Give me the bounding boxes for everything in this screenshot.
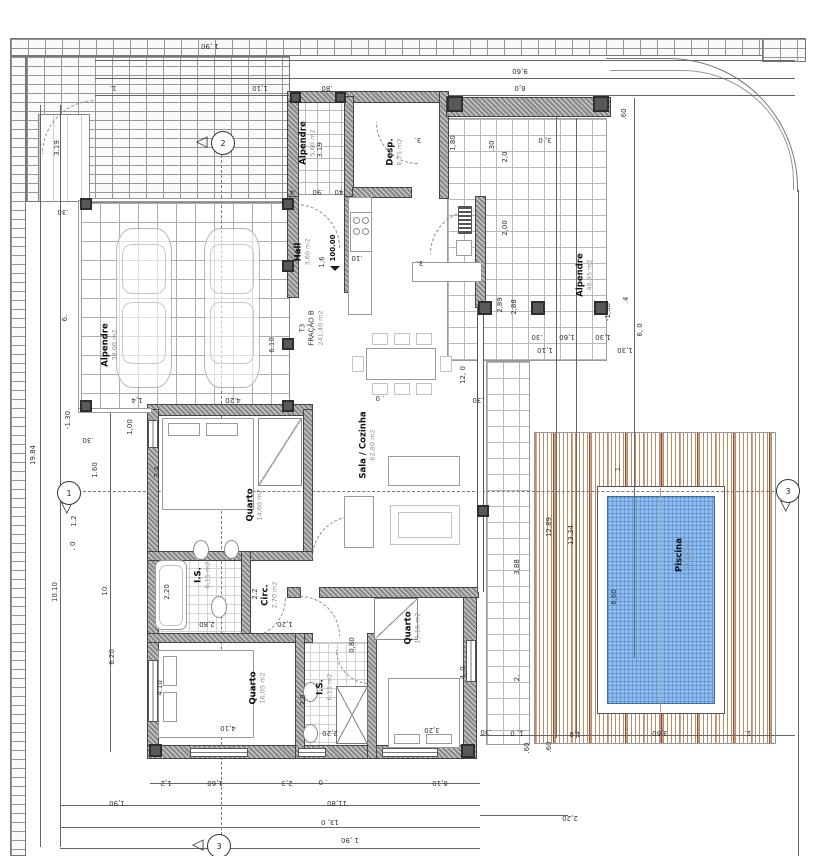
window xyxy=(298,748,326,757)
dimension-label: 10.10 xyxy=(51,582,59,602)
dimension-label: 4,10 xyxy=(220,724,236,732)
dimension-label: . 0 xyxy=(69,542,77,551)
toilet xyxy=(303,724,318,743)
room-label: Hall3,60 m2 xyxy=(294,238,311,265)
room-area: 23,60 m2 xyxy=(685,538,692,572)
room-label: Piscina23,60 m2 xyxy=(675,538,692,572)
chair xyxy=(352,356,364,372)
dimension-label: 2,20 xyxy=(562,814,578,822)
chair xyxy=(440,356,452,372)
pillow xyxy=(206,423,238,436)
pillow xyxy=(163,656,177,686)
dimension-label: 1,30 xyxy=(617,346,633,354)
appliance xyxy=(456,240,472,256)
dimension-label: 2,20 xyxy=(322,729,338,737)
dimension-label: . 0 xyxy=(319,778,328,786)
dimension-label: 3.19 xyxy=(316,142,324,158)
pillow xyxy=(168,423,200,436)
dimension-label: 3. xyxy=(417,259,424,267)
dim-line xyxy=(634,98,635,658)
armchair xyxy=(344,496,374,548)
room-label: Alpendre38,00 m2 xyxy=(101,323,118,366)
wall-top xyxy=(288,92,448,102)
column xyxy=(335,92,346,103)
dimension-label: 4, 0 xyxy=(459,666,467,679)
wall-sala-q3 xyxy=(288,588,300,597)
dimension-label: 9,60 xyxy=(512,67,528,75)
column xyxy=(531,301,545,315)
dimension-label: 1,60 xyxy=(207,779,223,787)
dining-table xyxy=(366,348,436,380)
dimension-label: .90 xyxy=(312,188,323,196)
dimension-label: 1,80 xyxy=(449,135,457,151)
dimension-label: 1,00 xyxy=(126,419,134,435)
dimension-label: 6.10 xyxy=(268,337,276,353)
dimension-label: 0,80 xyxy=(348,637,356,653)
column xyxy=(461,744,475,758)
column xyxy=(282,338,294,350)
dimension-label: 1. xyxy=(110,84,117,92)
room-area: 14,60 m2 xyxy=(256,488,263,521)
pillow xyxy=(426,734,452,744)
unit-title-line: FRAÇÃO B xyxy=(308,310,317,345)
appliance xyxy=(458,206,472,234)
dim-line xyxy=(576,118,577,738)
dimension-label: 1. xyxy=(745,729,752,737)
wall-porch-divider xyxy=(345,97,353,197)
room-area: 2,70 m2 xyxy=(271,581,278,608)
room-label: Circ.2,70 m2 xyxy=(261,581,278,608)
column xyxy=(282,400,294,412)
dimension-label: 1,10 xyxy=(537,346,553,354)
site-paving-corner xyxy=(762,38,806,62)
dimension-label: 1,20 xyxy=(277,620,293,628)
dimension-label: 2,89 xyxy=(496,297,504,313)
wall-q1-right xyxy=(304,410,312,560)
dimension-label: 4.10 xyxy=(156,680,164,696)
dimension-label: 2,20 xyxy=(163,584,171,600)
unit-title-line: 241,40 m2 xyxy=(317,310,325,345)
dim-line xyxy=(60,827,480,828)
carport-edge xyxy=(78,200,82,412)
column xyxy=(447,96,463,112)
chair xyxy=(394,383,410,395)
dimension-label: 1.60 xyxy=(91,462,99,478)
dimension-label: .30 xyxy=(82,436,93,444)
room-label: Alpendre5,60 m2 xyxy=(299,121,316,164)
column xyxy=(290,92,301,103)
dimension-label: -1,30 xyxy=(604,303,612,321)
dimension-label: 3, 0 xyxy=(538,136,551,144)
dimension-label: .30 xyxy=(531,333,542,341)
room-label: Quarto19,15 m2 xyxy=(404,611,421,644)
pillow xyxy=(394,734,420,744)
wall-sala-q3 xyxy=(320,588,478,597)
room-area: 3,60 m2 xyxy=(304,238,311,265)
dimension-label: .30 xyxy=(57,208,68,216)
window xyxy=(382,748,438,757)
chair xyxy=(416,333,432,345)
dimension-label: 2.2 xyxy=(251,588,259,599)
room-area: 40,95 m2 xyxy=(586,253,593,296)
dim-line xyxy=(480,815,568,816)
column xyxy=(477,505,489,517)
bidet xyxy=(211,596,227,618)
dimension-label: 1,90 xyxy=(109,799,125,807)
column xyxy=(80,198,92,210)
car-cabin xyxy=(122,302,166,364)
dimension-label: 1 ,90 xyxy=(201,42,219,50)
dimension-label: 1,2 xyxy=(160,779,171,787)
section-marker-triangle-icon: ◁ xyxy=(196,134,208,149)
dimension-label: .10 xyxy=(351,254,362,262)
section-marker-number: 3 xyxy=(776,479,800,503)
pool-water xyxy=(607,496,715,704)
dimension-label: 6. xyxy=(61,315,69,322)
dimension-label: 2,0 xyxy=(501,151,509,162)
level-label: 100.00 xyxy=(329,234,337,261)
sink xyxy=(193,540,209,560)
room-area: 6,15 m2 xyxy=(326,673,333,700)
column xyxy=(478,301,492,315)
wardrobe xyxy=(258,418,302,486)
shower xyxy=(336,686,368,744)
dimension-label: 3. xyxy=(415,136,422,144)
dimension-label: 3,60 xyxy=(652,729,668,737)
car-cabin xyxy=(210,302,254,364)
dim-line xyxy=(60,848,480,849)
room-label: Quarto16,05 m2 xyxy=(249,671,266,704)
dimension-label: 12, 0 xyxy=(459,366,467,384)
dim-line xyxy=(110,412,111,752)
pool-axis-line xyxy=(660,432,661,744)
room-label: I.S.6,15 m2 xyxy=(316,673,333,700)
dimension-label: 1,6 xyxy=(318,256,326,267)
dimension-label: .60 xyxy=(523,742,531,753)
dimension-label: 2,80 xyxy=(199,620,215,628)
terrace-side-floor xyxy=(486,361,530,745)
dimension-label: 1,8 xyxy=(569,730,580,738)
room-area: 6,75 m2 xyxy=(396,138,403,165)
dimension-label: 19.84 xyxy=(29,445,37,465)
section-marker-number: 1 xyxy=(57,481,81,505)
dimension-label: 13.34 xyxy=(567,525,575,545)
column xyxy=(80,400,92,412)
burner xyxy=(353,228,360,235)
floorplan-sheet: 1 ,909,601.1,10.806,03.193.191,803, 0.60… xyxy=(0,0,816,856)
section-marker-triangle-icon: ◁ xyxy=(192,837,204,852)
window xyxy=(148,420,158,448)
dimension-label: 1,10 xyxy=(252,84,268,92)
column xyxy=(282,198,294,210)
dimension-label: 2,88 xyxy=(510,299,518,315)
room-area: 6,15 m2 xyxy=(204,561,211,588)
dimension-label: 3,20 xyxy=(424,726,440,734)
dimension-label: 13, 0 xyxy=(321,818,339,826)
level-triangle xyxy=(330,266,340,276)
dim-line xyxy=(95,60,795,61)
dimension-label: 2. xyxy=(513,675,521,682)
boundary-curve-inner xyxy=(610,70,794,190)
toilet xyxy=(224,540,239,559)
dimension-label: 4.20 xyxy=(225,396,241,404)
room-area: 16,05 m2 xyxy=(259,671,266,704)
door-arc xyxy=(300,596,340,636)
dimension-label: 3,88 xyxy=(513,559,521,575)
dimension-label: .4 xyxy=(290,188,297,196)
burner xyxy=(362,217,369,224)
dimension-label: .4 xyxy=(622,297,630,304)
window xyxy=(190,748,248,757)
room-area: 38,00 m2 xyxy=(111,323,118,366)
dimension-label: 6,10 xyxy=(432,779,448,787)
dimension-label: .60 xyxy=(620,108,628,119)
rug-inner xyxy=(398,512,452,538)
section-marker-number: 3 xyxy=(207,834,231,856)
dimension-label: 2,3 xyxy=(281,779,292,787)
dimension-label: 6, 0 xyxy=(636,323,644,336)
window xyxy=(466,640,476,682)
dimension-label: .30 xyxy=(472,396,483,404)
dimension-label: 10. xyxy=(101,584,109,595)
dimension-label: 1,60 xyxy=(559,333,575,341)
unit-title: T3FRAÇÃO B241,40 m2 xyxy=(299,310,326,345)
site-paving-left xyxy=(10,56,26,856)
dimension-label: 11,80 xyxy=(327,799,347,807)
dimension-label: 1,4 xyxy=(131,396,142,404)
burner xyxy=(362,228,369,235)
dimension-label: -1.30 xyxy=(64,411,72,429)
burner xyxy=(353,217,360,224)
room-area: 62,80 m2 xyxy=(369,411,376,478)
dimension-label: .40 xyxy=(334,188,345,196)
dimension-label: .60 xyxy=(545,741,553,752)
dimension-label: 1 ,90 xyxy=(341,836,359,844)
glass-wall xyxy=(477,307,484,363)
dimension-label: 1.2 xyxy=(70,515,78,526)
carport-edge xyxy=(80,198,290,202)
dimension-label: 1, 0 xyxy=(510,729,523,737)
column xyxy=(593,96,609,112)
dim-line xyxy=(60,105,61,847)
chair xyxy=(416,383,432,395)
dimension-label: 1,30 xyxy=(595,333,611,341)
pillow xyxy=(163,692,177,722)
unit-title-line: T3 xyxy=(299,310,308,345)
dimension-label: 3.19 xyxy=(53,140,61,156)
room-area: 19,15 m2 xyxy=(414,611,421,644)
garden-wall xyxy=(447,98,610,116)
dimension-label: 1. xyxy=(614,465,622,472)
dimension-label: 6.20 xyxy=(108,649,116,665)
site-paving-top xyxy=(10,38,798,56)
column xyxy=(149,744,162,757)
car-hood xyxy=(122,244,166,294)
wall-kitchen-right xyxy=(476,197,485,307)
column xyxy=(282,260,294,272)
dimension-label: . 0 xyxy=(376,394,385,402)
room-label: Sala / Cozinha62,80 m2 xyxy=(359,411,376,478)
dim-line xyxy=(150,783,480,784)
dimension-label: 3.4 xyxy=(153,466,161,477)
room-label: Alpendre40,95 m2 xyxy=(576,253,593,296)
dim-line xyxy=(40,105,41,847)
dimension-label: 12.89 xyxy=(545,517,553,537)
dimension-label: 2,8 xyxy=(299,694,307,705)
room-label: Desp.6,75 m2 xyxy=(386,138,403,165)
room-label: Quarto14,60 m2 xyxy=(246,488,263,521)
car-hood xyxy=(210,244,254,294)
dimension-label: .30 xyxy=(480,728,491,736)
room-area: 5,60 m2 xyxy=(309,121,316,164)
dimension-label: 6,60 xyxy=(610,589,618,605)
section-marker-number: 2 xyxy=(211,131,235,155)
wall-porch-left xyxy=(288,102,298,197)
sofa xyxy=(388,456,460,486)
dimension-label: 6,0 xyxy=(514,84,525,92)
dim-line xyxy=(95,78,795,79)
dimension-label: 2,00 xyxy=(501,220,509,236)
room-label: I.S.6,15 m2 xyxy=(194,561,211,588)
dim-line xyxy=(556,98,557,738)
dimension-label: .30 xyxy=(488,140,496,151)
dimension-label: .80 xyxy=(321,84,332,92)
chair xyxy=(372,333,388,345)
boundary-right-line xyxy=(798,190,799,856)
wall-is1-bottom xyxy=(148,634,312,642)
wall-desp-bottom xyxy=(353,188,411,197)
chair xyxy=(394,333,410,345)
